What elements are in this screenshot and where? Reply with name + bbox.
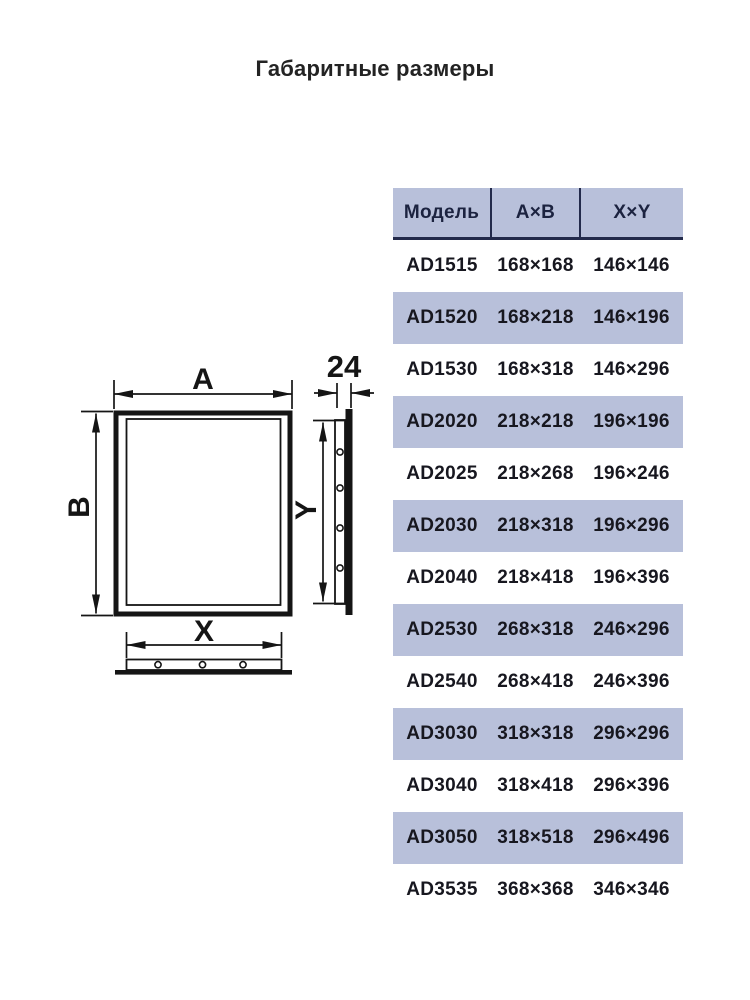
cell-ab: 218×218 [491,396,580,448]
table-row: AD3040 318×418 296×396 [393,760,683,812]
cell-ab: 318×318 [491,708,580,760]
cell-model: AD1530 [393,344,491,396]
cell-model: AD1520 [393,292,491,344]
col-header-model: Модель [393,188,491,239]
table-row: AD2540 268×418 246×396 [393,656,683,708]
dim-label-b: B [63,496,96,518]
table-header-row: Модель A×B X×Y [393,188,683,239]
page: Габаритные размеры A B [0,0,750,1000]
col-header-ab: A×B [491,188,580,239]
screw-hole [337,525,343,531]
cell-xy: 146×296 [580,344,683,396]
cell-xy: 246×396 [580,656,683,708]
cell-xy: 346×346 [580,864,683,916]
dim-depth: 24 [314,349,374,408]
col-header-xy: X×Y [580,188,683,239]
side-frame-bar [335,420,345,604]
cell-ab: 218×318 [491,500,580,552]
cell-xy: 196×246 [580,448,683,500]
dim-b: B [63,412,113,616]
cell-ab: 318×518 [491,812,580,864]
screw-hole [155,662,161,668]
dimension-drawing: A B 24 [55,348,380,688]
table-row: AD3050 318×518 296×496 [393,812,683,864]
page-title: Габаритные размеры [0,56,750,82]
cell-ab: 268×418 [491,656,580,708]
screw-hole [337,565,343,571]
dim-x: X [127,615,282,658]
cell-ab: 168×318 [491,344,580,396]
front-view [116,413,290,614]
cell-xy: 146×196 [580,292,683,344]
cell-xy: 196×296 [580,500,683,552]
cell-ab: 218×268 [491,448,580,500]
table-row: AD2030 218×318 196×296 [393,500,683,552]
dim-label-depth: 24 [327,349,362,384]
cell-model: AD2040 [393,552,491,604]
cell-xy: 146×146 [580,239,683,293]
cell-model: AD3050 [393,812,491,864]
table-row: AD2025 218×268 196×246 [393,448,683,500]
cell-xy: 196×396 [580,552,683,604]
side-view [335,409,353,615]
panel-inner-frame [127,419,281,605]
dim-a: A [114,363,292,409]
cell-model: AD1515 [393,239,491,293]
cell-xy: 246×296 [580,604,683,656]
screw-hole [337,449,343,455]
table-row: AD3535 368×368 346×346 [393,864,683,916]
cell-ab: 318×418 [491,760,580,812]
screw-hole [337,485,343,491]
cell-ab: 368×368 [491,864,580,916]
cell-model: AD2530 [393,604,491,656]
table-row: AD2040 218×418 196×396 [393,552,683,604]
cell-ab: 168×218 [491,292,580,344]
cell-model: AD3040 [393,760,491,812]
cell-ab: 168×168 [491,239,580,293]
cell-ab: 268×318 [491,604,580,656]
side-door-face [346,409,353,615]
flange-base-plate [115,670,292,675]
cell-ab: 218×418 [491,552,580,604]
table-row: AD3030 318×318 296×296 [393,708,683,760]
dim-label-a: A [192,363,214,396]
cell-xy: 296×496 [580,812,683,864]
cell-model: AD2025 [393,448,491,500]
dim-label-x: X [194,615,214,648]
cell-xy: 296×296 [580,708,683,760]
screw-hole [240,662,246,668]
table-row: AD1520 168×218 146×196 [393,292,683,344]
bottom-view [115,660,292,675]
screw-hole [199,662,205,668]
size-table: Модель A×B X×Y AD1515 168×168 146×146 AD… [393,188,683,916]
cell-model: AD3030 [393,708,491,760]
dim-label-y: Y [290,500,323,520]
table-row: AD2530 268×318 246×296 [393,604,683,656]
cell-xy: 296×396 [580,760,683,812]
cell-model: AD2020 [393,396,491,448]
cell-xy: 196×196 [580,396,683,448]
table-row: AD1515 168×168 146×146 [393,239,683,293]
cell-model: AD2540 [393,656,491,708]
table-row: AD2020 218×218 196×196 [393,396,683,448]
cell-model: AD3535 [393,864,491,916]
cell-model: AD2030 [393,500,491,552]
table-row: AD1530 168×318 146×296 [393,344,683,396]
